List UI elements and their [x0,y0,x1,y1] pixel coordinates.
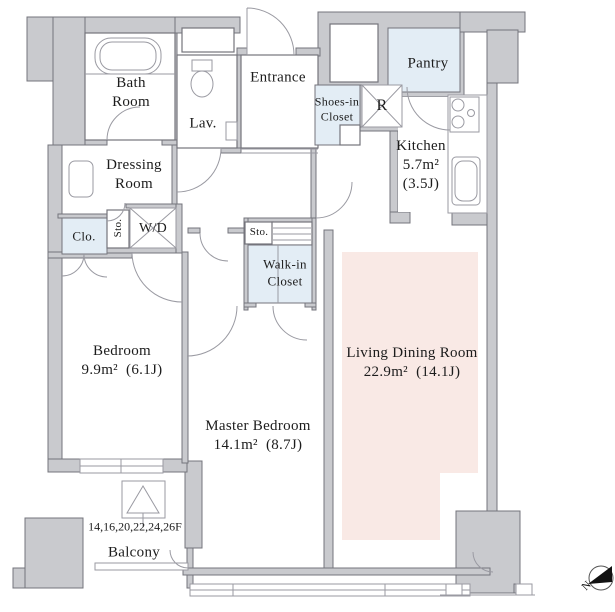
label-storage-2: Sto. [250,225,269,239]
room-label-dressing: Dressing Room [106,156,162,194]
room-label-kitchen: Kitchen 5.7m² (3.5J) [396,137,446,195]
kitchen-sink-icon [452,157,480,205]
bedroom-door-arc [132,252,182,302]
closet-doors-arc-left [187,306,237,356]
entrance-sill [241,149,318,153]
floor-plan: N Bath Room Lav. Entrance Shoes-in Close… [0,0,615,612]
room-label-pantry: Pantry [408,54,449,73]
toilet-icon [191,60,213,97]
compass-icon: N [579,566,613,593]
master-bedroom-door-arc [200,233,228,261]
living-dining-floor-lower [342,473,440,540]
compass-north-label: N [579,579,593,593]
label-refrigerator: R [377,96,388,116]
bedroom-window [80,459,163,473]
label-closet: Clo. [72,229,95,246]
label-washer-dryer: W/D [139,220,167,238]
room-label-shoes-closet: Shoes-in Closet [315,95,359,126]
room-label-balcony: Balcony [108,543,160,562]
room-label-master-bedroom: Master Bedroom 14.1m² (8.7J) [205,417,310,455]
room-label-living-dining: Living Dining Room 22.9m² (14.1J) [346,344,477,382]
room-label-bedroom: Bedroom 9.9m² (6.1J) [82,342,163,380]
room-label-walk-in-closet: Walk-in Closet [263,256,307,289]
balcony-railing-left [95,563,188,570]
stove-icon [450,97,479,132]
lav-door-arc [177,148,221,192]
label-floors: 14,16,20,22,24,26F [88,519,182,534]
entrance-door-arc [247,8,294,55]
closet-doors-arc-right [273,306,307,340]
room-label-lav: Lav. [189,114,216,133]
living-room-door-arc [316,182,352,218]
room-label-bath: Bath Room [112,74,150,112]
label-storage-1: Sto. [111,219,125,238]
shoes-closet-step [340,125,360,145]
room-label-entrance: Entrance [250,68,306,87]
washbasin-icon [69,161,93,197]
pipe-shaft [330,24,378,82]
meter-box [182,28,234,52]
lav-cabinet-icon [226,122,237,140]
